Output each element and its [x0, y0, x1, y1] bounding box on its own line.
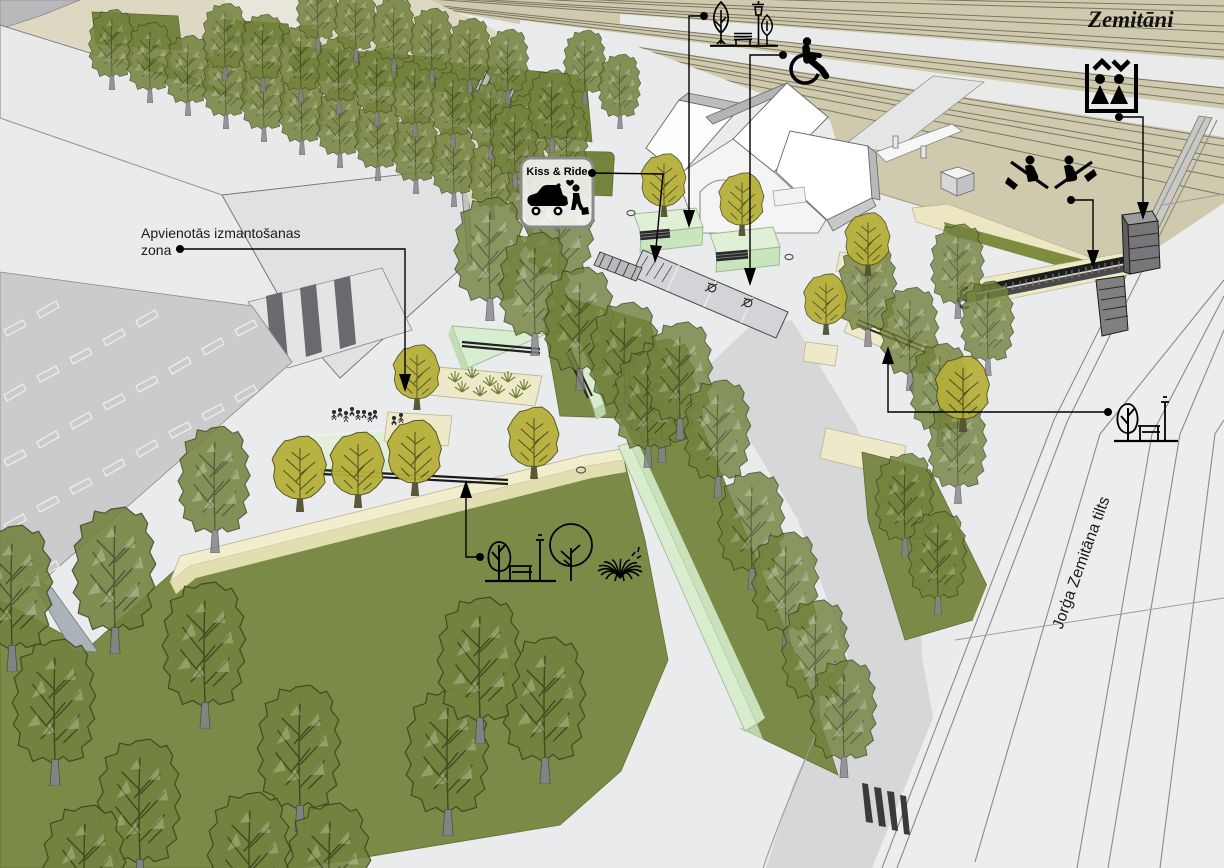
svg-text:Zemitāni: Zemitāni	[1087, 7, 1174, 32]
svg-text:Apvienotās izmantošanas: Apvienotās izmantošanas	[141, 225, 301, 241]
svg-text:zona: zona	[141, 242, 172, 258]
svg-text:Kiss & Ride: Kiss & Ride	[526, 166, 587, 178]
